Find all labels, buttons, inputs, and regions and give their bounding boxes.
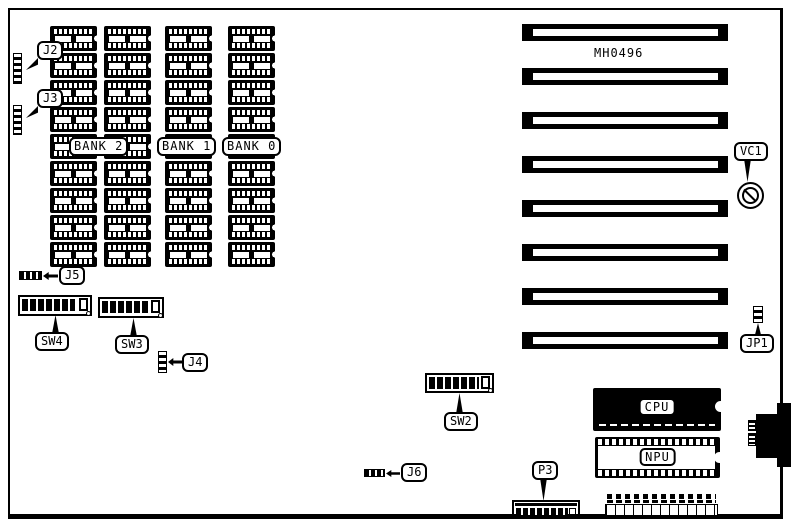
keyboard-connector-pin — [748, 420, 756, 431]
memory-chip — [104, 161, 151, 186]
memory-chip — [228, 107, 275, 132]
p3-bar — [515, 503, 577, 506]
j2-callout: J2 — [37, 41, 63, 60]
vc1-trimmer — [737, 182, 764, 209]
jp1-callout: JP1 — [740, 334, 774, 353]
sw4-switch-cells — [22, 299, 75, 311]
memory-chip — [165, 107, 212, 132]
j5-callout: J5 — [59, 266, 85, 285]
expansion-slot-opening — [533, 73, 718, 80]
dip-switch-sw2 — [425, 373, 494, 393]
sw3-callout: SW3 — [115, 335, 149, 354]
memory-chip — [104, 80, 151, 105]
expansion-slot — [522, 332, 728, 349]
memory-chip — [228, 188, 275, 213]
memory-chip — [228, 161, 275, 186]
memory-chip — [165, 215, 212, 240]
bank0-label: BANK 0 — [222, 137, 281, 156]
memory-chip — [165, 80, 212, 105]
j4-connector — [158, 351, 167, 373]
keyboard-connector-shell — [777, 403, 791, 467]
motherboard-diagram: MH0496 BANK 2 BANK 1 BANK 0 J2 J3 J5 SW4… — [0, 0, 791, 527]
j6-connector — [364, 469, 385, 477]
sw2-switch-cells — [429, 377, 479, 389]
p3-cells — [516, 508, 568, 515]
j4-callout: J4 — [182, 353, 208, 372]
cpu-label: CPU — [639, 398, 676, 416]
npu-notch — [714, 452, 725, 463]
expansion-slot — [522, 288, 728, 305]
memory-chip — [228, 242, 275, 267]
terminal-sockets-row — [605, 504, 718, 516]
memory-chip — [165, 161, 212, 186]
memory-chip — [104, 188, 151, 213]
keyboard-connector-pin — [748, 433, 756, 446]
power-terminal-connector — [605, 494, 718, 516]
cpu-chip: CPU — [593, 388, 721, 431]
expansion-slot-opening — [533, 205, 718, 212]
vc1-callout: VC1 — [734, 142, 768, 161]
sw3-switch-cells — [102, 301, 150, 313]
npu-socket: NPU — [595, 437, 720, 478]
dip-switch-sw3 — [98, 297, 164, 318]
j6-callout: J6 — [401, 463, 427, 482]
terminal-bars-row — [607, 500, 716, 503]
memory-chip — [165, 188, 212, 213]
memory-chip — [165, 26, 212, 51]
p3-callout: P3 — [532, 461, 558, 480]
memory-chip — [50, 215, 97, 240]
terminal-pins-row — [607, 494, 716, 499]
memory-chip — [104, 242, 151, 267]
memory-chip — [104, 107, 151, 132]
memory-chip — [104, 26, 151, 51]
j2-connector — [13, 53, 22, 84]
sw3-dot — [158, 313, 163, 318]
memory-chip — [50, 107, 97, 132]
memory-chip — [228, 80, 275, 105]
board-model-text: MH0496 — [594, 46, 643, 60]
sw2-open-cell — [481, 376, 490, 389]
jp1-jumper — [753, 306, 763, 323]
expansion-slot-opening — [533, 117, 718, 124]
cpu-dashed-line — [599, 424, 715, 426]
expansion-slot-opening — [533, 161, 718, 168]
sw4-open-cell — [79, 298, 88, 311]
npu-label: NPU — [639, 448, 676, 466]
bank1-label: BANK 1 — [157, 137, 216, 156]
expansion-slot — [522, 156, 728, 173]
j3-callout: J3 — [37, 89, 63, 108]
p3-open-cell — [569, 508, 576, 515]
sw4-dot — [86, 311, 91, 316]
sw2-callout: SW2 — [444, 412, 478, 431]
cpu-notch — [715, 401, 726, 412]
expansion-slot — [522, 112, 728, 129]
memory-chip — [165, 53, 212, 78]
expansion-slot — [522, 68, 728, 85]
memory-chip — [228, 215, 275, 240]
expansion-slot-opening — [533, 249, 718, 256]
expansion-slot-opening — [533, 337, 718, 344]
expansion-slot — [522, 24, 728, 41]
npu-pins-bottom — [598, 470, 715, 476]
j5-connector — [19, 271, 42, 280]
memory-chip — [228, 26, 275, 51]
expansion-slot-opening — [533, 293, 718, 300]
memory-chip — [50, 161, 97, 186]
npu-pins-top — [598, 439, 715, 445]
p3-connector — [512, 500, 580, 516]
expansion-slot — [522, 244, 728, 261]
bank2-label: BANK 2 — [69, 137, 128, 156]
sw2-dot — [488, 388, 493, 393]
memory-chip — [104, 215, 151, 240]
memory-chip — [50, 242, 97, 267]
expansion-slot-opening — [533, 29, 718, 36]
dip-switch-sw4 — [18, 295, 92, 316]
memory-chip — [228, 53, 275, 78]
memory-chip — [165, 242, 212, 267]
sw4-callout: SW4 — [35, 332, 69, 351]
expansion-slot — [522, 200, 728, 217]
j3-connector — [13, 105, 22, 135]
memory-chip — [104, 53, 151, 78]
memory-chip — [50, 188, 97, 213]
sw3-open-cell — [151, 300, 160, 313]
